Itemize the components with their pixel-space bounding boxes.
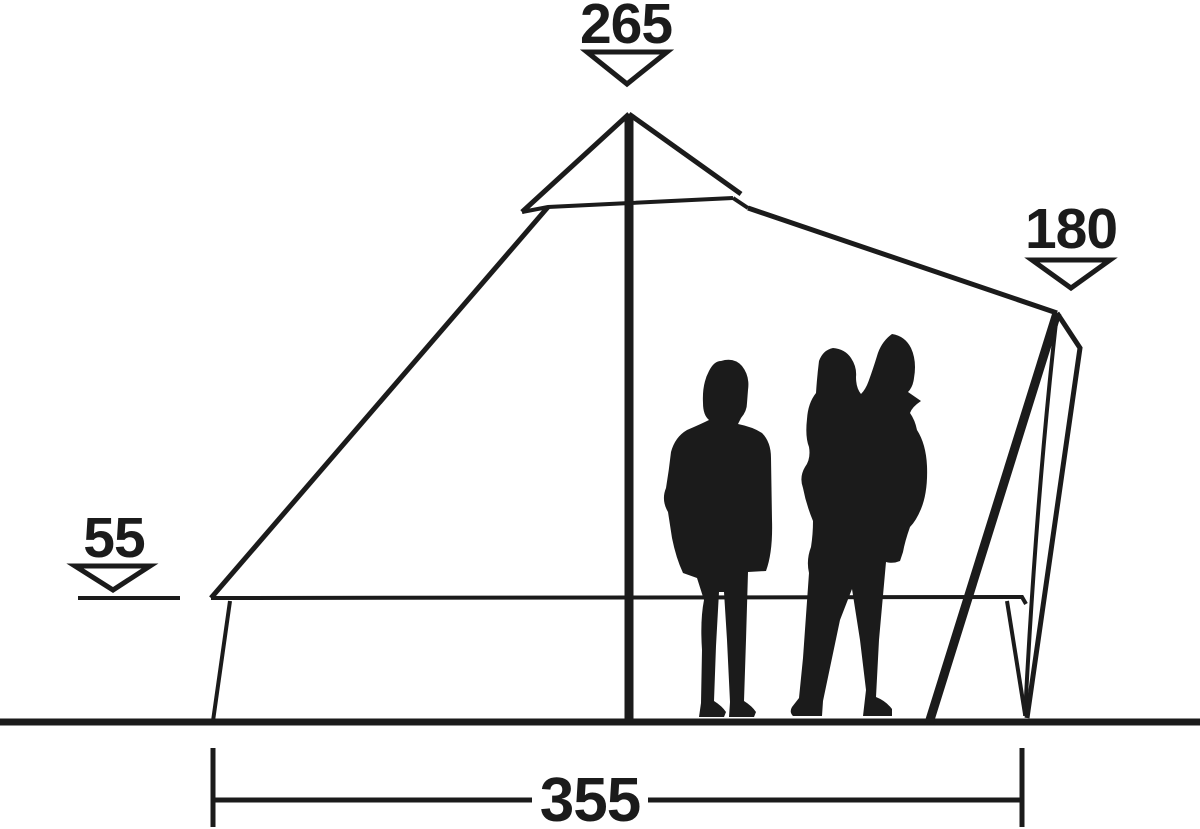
marker-triangle-group: [75, 52, 1110, 590]
adult-with-child-silhouette: [791, 334, 927, 716]
door-height-label: 180: [1025, 197, 1117, 261]
woman-silhouette: [664, 360, 772, 717]
left-roof-slope-line: [211, 207, 548, 598]
tent-dimension-diagram: 265 180 55 355: [0, 0, 1200, 829]
peak-height-label: 265: [580, 0, 672, 56]
cap-left-edge-line: [522, 114, 629, 212]
door-flap-line: [1007, 601, 1025, 714]
measurement-label-group: 265 180 55 355: [83, 0, 1117, 829]
peak-height-marker-triangle-icon: [587, 52, 667, 84]
ridge-line: [748, 208, 1057, 313]
door-height-marker-triangle-icon: [1032, 260, 1110, 288]
left-wall-line: [213, 601, 230, 721]
tent-outline-group: [0, 114, 1200, 723]
wall-top-line: [211, 597, 1026, 604]
cap-right-edge-line: [629, 114, 741, 194]
floor-width-label: 355: [540, 766, 640, 829]
diagram-canvas: 265 180 55 355: [0, 0, 1200, 829]
cap-notch-line: [733, 198, 748, 208]
wall-height-label: 55: [83, 506, 145, 570]
people-silhouette-group: [664, 334, 927, 717]
